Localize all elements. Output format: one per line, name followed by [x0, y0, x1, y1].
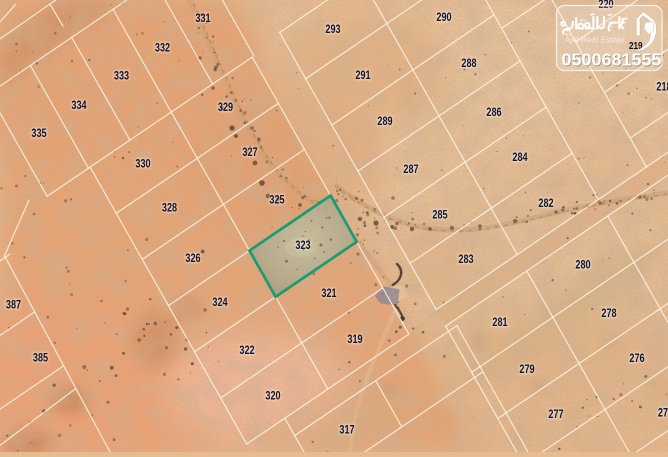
- svg-text:293: 293: [325, 22, 340, 36]
- svg-text:283: 283: [458, 252, 473, 266]
- svg-text:286: 286: [486, 105, 501, 119]
- svg-text:218: 218: [656, 79, 668, 93]
- svg-text:282: 282: [538, 196, 553, 210]
- svg-text:291: 291: [355, 68, 370, 82]
- svg-text:280: 280: [575, 257, 590, 271]
- svg-text:333: 333: [114, 68, 129, 82]
- svg-text:324: 324: [212, 295, 227, 309]
- svg-text:275: 275: [658, 405, 668, 419]
- svg-text:385: 385: [33, 350, 48, 364]
- svg-text:325: 325: [269, 192, 284, 206]
- svg-text:289: 289: [377, 114, 392, 128]
- svg-text:329: 329: [218, 100, 233, 114]
- svg-text:320: 320: [265, 388, 280, 402]
- svg-text:322: 322: [239, 343, 254, 357]
- svg-text:276: 276: [629, 351, 644, 365]
- svg-text:Ajel Real Estate: Ajel Real Estate: [565, 36, 625, 45]
- svg-text:326: 326: [185, 251, 200, 265]
- svg-text:288: 288: [461, 56, 476, 70]
- svg-text:335: 335: [31, 126, 46, 140]
- svg-text:279: 279: [519, 362, 534, 376]
- svg-text:281: 281: [492, 315, 507, 329]
- svg-text:278: 278: [601, 306, 616, 320]
- svg-text:328: 328: [162, 200, 177, 214]
- svg-text:319: 319: [347, 332, 362, 346]
- svg-text:327: 327: [242, 145, 257, 159]
- svg-text:0500681555: 0500681555: [562, 50, 662, 70]
- svg-text:285: 285: [432, 207, 447, 221]
- svg-text:331: 331: [195, 11, 210, 25]
- svg-text:330: 330: [135, 156, 150, 170]
- svg-text:387: 387: [6, 297, 21, 311]
- svg-text:317: 317: [339, 422, 354, 436]
- svg-text:321: 321: [321, 286, 336, 300]
- svg-text:290: 290: [436, 10, 451, 24]
- svg-text:287: 287: [403, 162, 418, 176]
- svg-text:334: 334: [71, 98, 86, 112]
- svg-text:332: 332: [155, 40, 170, 54]
- svg-text:284: 284: [512, 150, 527, 164]
- svg-text:323: 323: [295, 238, 310, 252]
- svg-text:277: 277: [548, 407, 563, 421]
